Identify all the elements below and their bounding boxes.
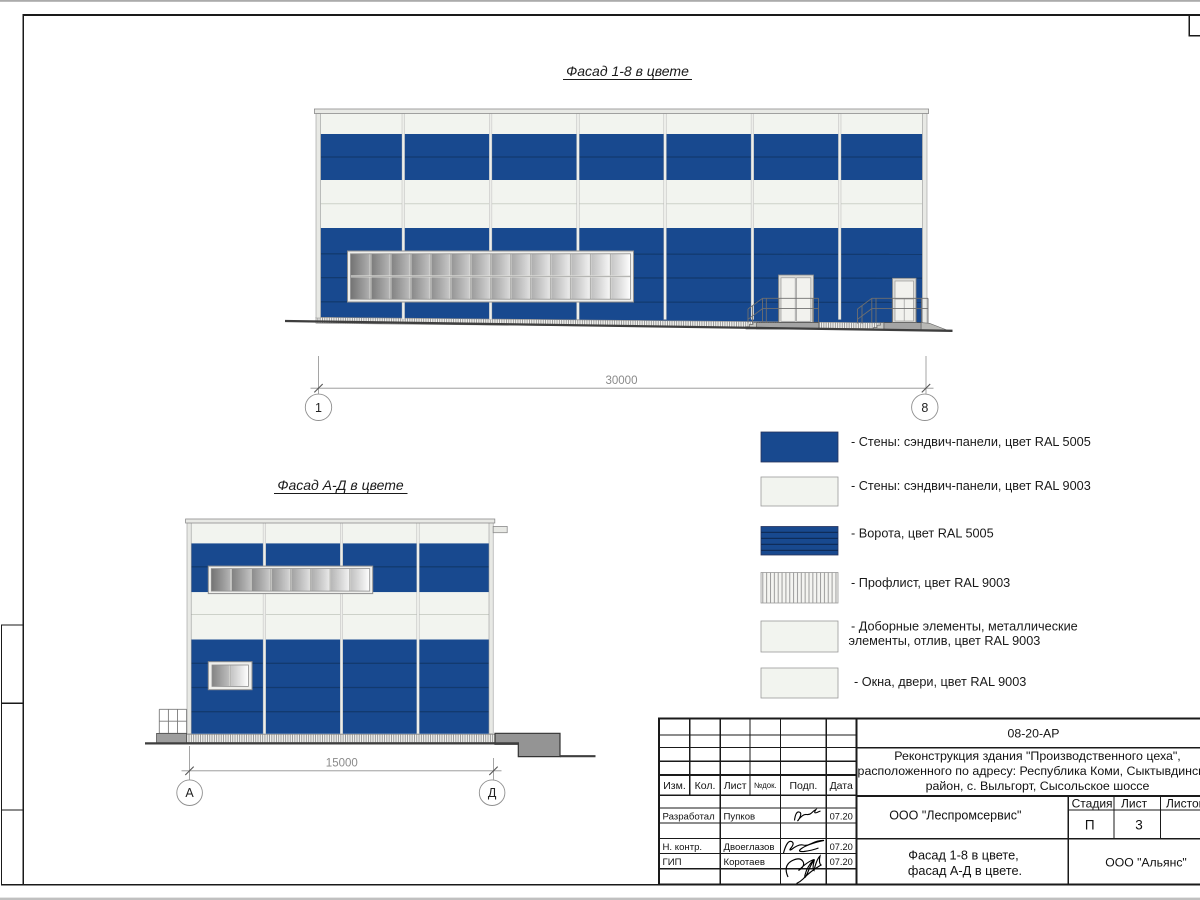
svg-text:район, с. Выльгорт, Сысольское: район, с. Выльгорт, Сысольское шоссе: [926, 779, 1150, 793]
svg-text:Изм.: Изм.: [663, 780, 686, 792]
svg-text:- Стены: сэндвич-панели, цвет: - Стены: сэндвич-панели, цвет RAL 9003: [851, 479, 1091, 493]
svg-text:30000: 30000: [606, 375, 638, 387]
svg-text:Д: Д: [488, 786, 497, 800]
svg-text:П: П: [1085, 817, 1095, 832]
svg-text:1: 1: [315, 401, 322, 415]
svg-text:Коротаев: Коротаев: [724, 857, 765, 868]
svg-text:- Профлист, цвет RAL 9003: - Профлист, цвет RAL 9003: [851, 576, 1010, 590]
svg-text:- Ворота, цвет RAL 5005: - Ворота, цвет RAL 5005: [851, 527, 994, 541]
svg-text:- Окна, двери, цвет RAL 9003: - Окна, двери, цвет RAL 9003: [854, 675, 1026, 689]
svg-text:ГИП: ГИП: [663, 857, 682, 868]
svg-text:Кол.: Кол.: [695, 780, 716, 792]
svg-text:15000: 15000: [326, 758, 358, 770]
svg-text:ООО "Леспромсервис": ООО "Леспромсервис": [889, 809, 1021, 823]
svg-text:Пупков: Пупков: [724, 812, 756, 823]
svg-text:Реконструкция здания "Производ: Реконструкция здания "Производственного …: [894, 749, 1180, 763]
svg-text:Лист: Лист: [724, 780, 747, 792]
svg-text:Фасад 1-8 в цвете,: Фасад 1-8 в цвете,: [908, 847, 1018, 862]
svg-text:- Доборные элементы, металличе: - Доборные элементы, металлические: [851, 619, 1078, 633]
svg-text:Лист: Лист: [1121, 797, 1148, 811]
svg-text:элементы, отлив, цвет RAL 9003: элементы, отлив, цвет RAL 9003: [849, 634, 1041, 648]
svg-text:Стадия: Стадия: [1072, 797, 1113, 811]
svg-text:Двоеглазов: Двоеглазов: [724, 842, 775, 853]
svg-text:А: А: [185, 786, 194, 800]
svg-text:№док.: №док.: [754, 781, 777, 790]
svg-text:Дата: Дата: [830, 780, 853, 792]
svg-text:3: 3: [1135, 817, 1143, 832]
svg-text:Н. контр.: Н. контр.: [663, 842, 703, 853]
svg-text:8: 8: [921, 401, 928, 415]
svg-text:- Стены: сэндвич-панели, цвет: - Стены: сэндвич-панели, цвет RAL 5005: [851, 435, 1091, 449]
svg-text:Подп.: Подп.: [789, 780, 817, 792]
svg-text:07.20: 07.20: [830, 812, 853, 822]
svg-text:07.20: 07.20: [830, 857, 853, 867]
svg-text:фасад А-Д в цвете.: фасад А-Д в цвете.: [908, 863, 1022, 878]
svg-text:ООО "Альянс": ООО "Альянс": [1105, 855, 1187, 869]
svg-text:08-20-АР: 08-20-АР: [1008, 726, 1060, 740]
svg-text:Листов: Листов: [1166, 797, 1200, 811]
svg-text:07.20: 07.20: [830, 842, 853, 852]
svg-text:расположенного по адресу: Респ: расположенного по адресу: Республика Ком…: [858, 764, 1200, 778]
svg-text:Фасад 1-8 в цвете: Фасад 1-8 в цвете: [566, 63, 689, 79]
svg-text:Фасад А-Д в цвете: Фасад А-Д в цвете: [277, 477, 404, 493]
svg-text:Разработал: Разработал: [663, 812, 715, 823]
